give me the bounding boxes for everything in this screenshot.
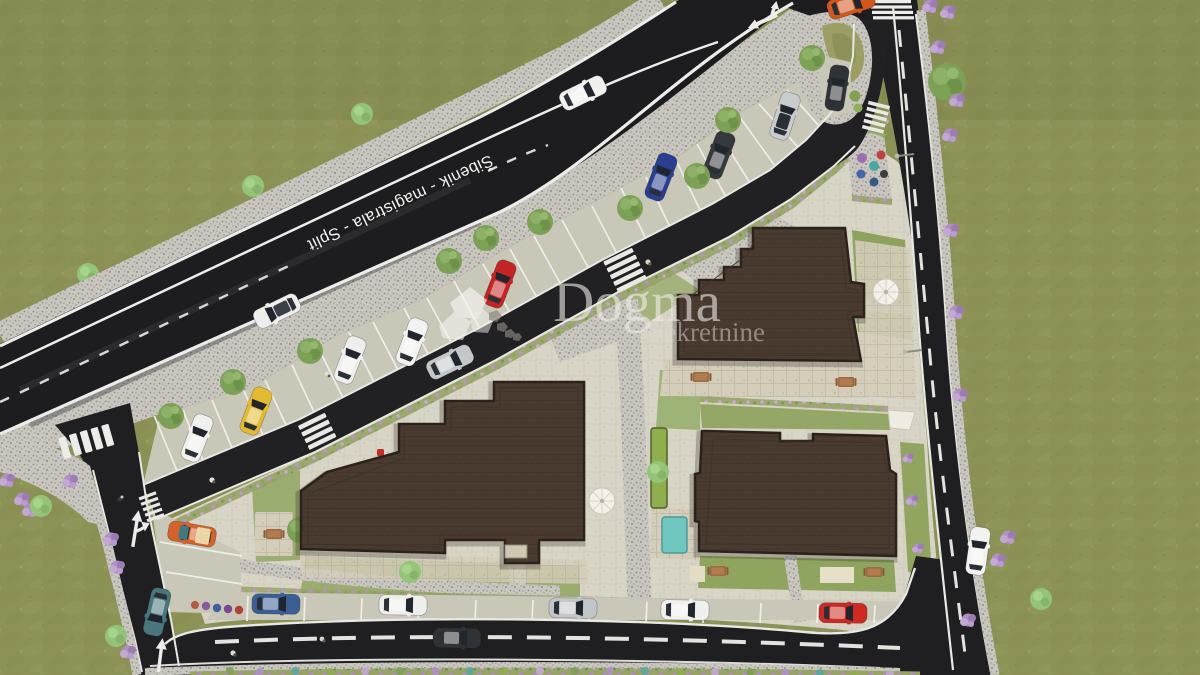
svg-text:nekretnine: nekretnine	[651, 317, 765, 347]
